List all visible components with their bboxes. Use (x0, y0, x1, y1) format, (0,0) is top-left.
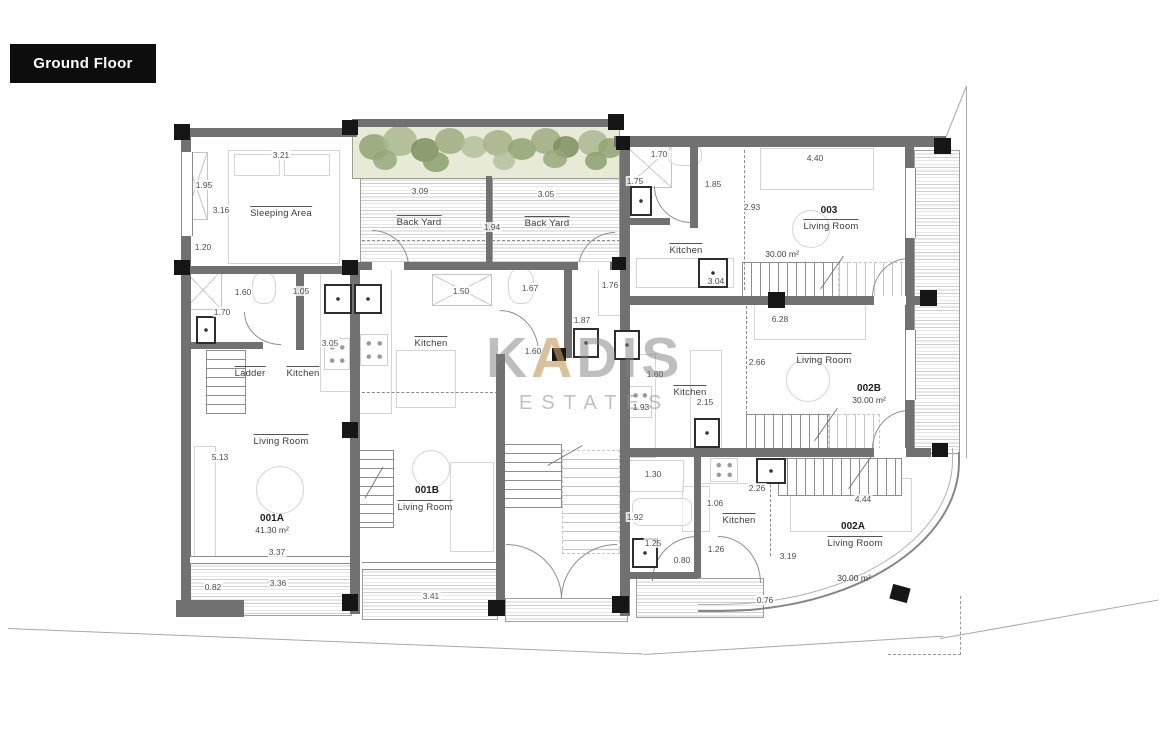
wall (620, 218, 670, 225)
room-label-living-room: Living Room (803, 219, 858, 232)
watermark-logo: KADIS (486, 330, 683, 387)
wardrobe (194, 446, 216, 564)
room-label-living-room: Living Room (253, 434, 308, 447)
sink (196, 316, 216, 344)
dimension-label: 3.36 (269, 578, 288, 588)
dimension-label: 3.19 (779, 551, 798, 561)
watermark-letters: DIS (576, 326, 683, 390)
room-label-kitchen: Kitchen (286, 366, 319, 379)
unit-area-002a: 30.00 m² (837, 573, 871, 583)
door-arc (244, 312, 281, 345)
column (920, 290, 937, 306)
room-label-living-room: Living Room (827, 536, 882, 549)
dimension-label: 2.26 (748, 483, 767, 493)
watermark-tagline: ESTATES (519, 392, 670, 415)
column (174, 260, 190, 275)
unit-id-002b: 002B (857, 383, 881, 394)
dimension-label: 2.93 (743, 202, 762, 212)
dimension-label: 0.80 (673, 555, 692, 565)
room-label-kitchen: Kitchen (669, 243, 702, 256)
watermark-letter-accent: A (531, 326, 576, 390)
wall (626, 572, 698, 579)
door-opening (874, 448, 906, 457)
unit-area-003: 30.00 m² (765, 249, 799, 259)
dimension-label: 1.75 (626, 176, 645, 186)
dimension-label: 1.85 (704, 179, 723, 189)
entrance-stairs (504, 444, 562, 508)
dimension-label: 1.26 (707, 544, 726, 554)
unit-id-001b: 001B (415, 485, 439, 496)
entrance-step-hatch (505, 598, 628, 622)
dimension-label: 5.13 (211, 452, 230, 462)
wall (614, 136, 946, 147)
door-opening (372, 262, 404, 270)
dimension-label: 1.60 (234, 287, 253, 297)
plant (435, 128, 465, 154)
column (488, 600, 505, 616)
unit-area-001a: 41.30 m² (255, 525, 289, 535)
dimension-label: 0.76 (756, 595, 775, 605)
plant (423, 152, 449, 172)
plant (373, 150, 397, 170)
column (932, 443, 948, 457)
stairs-001b (356, 450, 394, 528)
dimension-label: 4.44 (854, 494, 873, 504)
column (768, 292, 785, 308)
door-opening (874, 296, 906, 305)
wall (296, 266, 304, 350)
plant (493, 152, 515, 170)
room-label-ladder: Ladder (235, 366, 266, 379)
sink (630, 186, 652, 216)
dimension-label: 1.70 (213, 307, 232, 317)
table (412, 450, 450, 488)
boundary-line (8, 628, 644, 655)
dimension-label: 3.05 (537, 189, 556, 199)
dimension-label: 2.15 (696, 397, 715, 407)
column (342, 120, 358, 135)
sink (756, 458, 786, 484)
dimension-label: 1.94 (483, 222, 502, 232)
unit-id-003: 003 (821, 205, 838, 216)
dimension-label: 1.70 (650, 149, 669, 159)
floor-title: Ground Floor (10, 44, 156, 83)
sink (694, 418, 720, 448)
plant (585, 152, 607, 170)
room-label-living-room: Living Room (397, 500, 452, 513)
setback-dashed-line (362, 392, 498, 393)
dimension-label: 1.87 (573, 315, 592, 325)
dimension-label: 6.28 (771, 314, 790, 324)
dimension-label: 1.50 (452, 286, 471, 296)
plant (543, 150, 567, 168)
pillow (284, 154, 330, 176)
curved-facade-inner (698, 448, 953, 605)
wall (181, 342, 263, 349)
window-band (362, 562, 496, 570)
setback-dashed-line (744, 150, 745, 290)
dimension-label: 0.82 (204, 582, 223, 592)
dimension-label: 3.21 (272, 150, 291, 160)
table (256, 466, 304, 514)
dimension-label: 1.20 (194, 242, 213, 252)
entrance-stairs-upper (562, 450, 620, 554)
wall (350, 262, 360, 614)
dimension-label: 3.05 (321, 338, 340, 348)
wall (694, 452, 701, 578)
room-label-kitchen: Kitchen (414, 336, 447, 349)
dimension-label: 1.95 (195, 180, 214, 190)
sofa (450, 462, 494, 552)
dimension-label: 1.25 (644, 538, 663, 548)
window-band (905, 330, 916, 400)
setback-dashed-line (746, 306, 747, 444)
column (342, 260, 358, 275)
dimension-label: 3.09 (411, 186, 430, 196)
dimension-label: 1.06 (706, 498, 725, 508)
column (612, 596, 629, 613)
window-band (181, 152, 193, 236)
dimension-label: 3.16 (212, 205, 231, 215)
dimension-label: 1.92 (626, 512, 645, 522)
dimension-label: 1.76 (601, 280, 620, 290)
wall (181, 128, 357, 137)
entrance-door-arc (506, 544, 562, 599)
window-band (190, 556, 350, 564)
wall (690, 140, 698, 228)
dimension-label: 3.37 (268, 547, 287, 557)
dimension-label: 1.30 (644, 469, 663, 479)
column (612, 257, 626, 270)
room-label-back-yard: Back Yard (525, 216, 570, 229)
unit-id-002a: 002A (841, 521, 865, 532)
sink (324, 284, 352, 314)
dining-table (396, 350, 456, 408)
planting-strip (352, 119, 620, 179)
boundary-dashed-corner (888, 596, 961, 655)
column (342, 422, 358, 438)
unit-id-001a: 001A (260, 513, 284, 524)
wall (176, 600, 244, 617)
dimension-label: 1.05 (292, 286, 311, 296)
watermark-letter: K (486, 326, 531, 390)
dimension-label: 3.41 (422, 591, 441, 601)
toilet (252, 272, 276, 304)
wall (181, 266, 357, 274)
boundary-line (966, 86, 967, 458)
room-label-back-yard: Back Yard (397, 215, 442, 228)
unit-area-002b: 30.00 m² (852, 395, 886, 405)
stairs-002b (746, 414, 830, 449)
ladder-stairs (206, 350, 246, 414)
wall (352, 119, 618, 127)
wall (486, 176, 492, 266)
floor-plan-canvas: Ground Floor (0, 0, 1165, 747)
room-label-living-room: Living Room (796, 353, 851, 366)
column (616, 136, 630, 150)
column (608, 114, 624, 130)
dimension-label: 3.04 (707, 276, 726, 286)
column (934, 138, 951, 154)
room-label-kitchen: Kitchen (722, 513, 755, 526)
sink (354, 284, 382, 314)
boundary-line (940, 599, 1159, 639)
column (342, 594, 358, 611)
wall (496, 354, 505, 616)
column (174, 124, 190, 140)
dimension-label: 2.66 (748, 357, 767, 367)
window-band (905, 168, 916, 238)
dimension-label: 4.40 (806, 153, 825, 163)
dimension-label: 1.67 (521, 283, 540, 293)
door-opening (578, 262, 610, 270)
hob (360, 334, 388, 366)
room-label-sleeping-area: Sleeping Area (250, 206, 312, 219)
